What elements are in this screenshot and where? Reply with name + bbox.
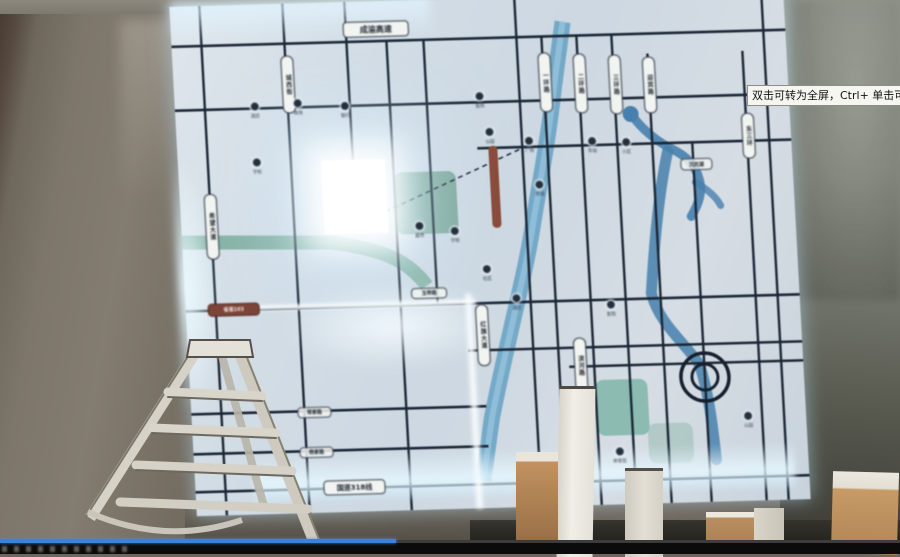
ladder-stabilizer-bar <box>88 512 242 531</box>
player-controls-blur <box>2 546 132 552</box>
ladder-top-cap <box>187 340 253 357</box>
fullscreen-tooltip: 双击可转为全屏，Ctrl+ 单击可转为 <box>747 85 900 106</box>
video-frame[interactable]: { "video_player": { "tooltip_text": "双击可… <box>0 0 900 554</box>
white-pillar-tall <box>557 386 596 557</box>
tan-box-left <box>516 452 558 554</box>
player-bottom-bar <box>0 543 900 554</box>
progress-fill[interactable] <box>0 539 396 543</box>
step-ladder <box>0 0 900 554</box>
